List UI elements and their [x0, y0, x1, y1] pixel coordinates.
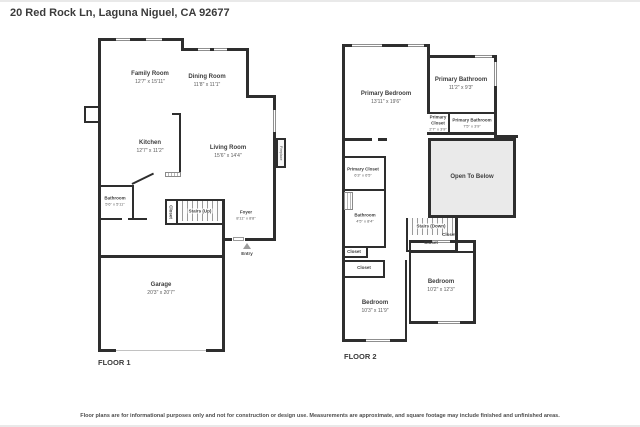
wall-segment	[411, 251, 473, 253]
shower	[344, 192, 353, 210]
room-label-closet-bedroom: Closet	[442, 232, 456, 238]
wall-segment	[179, 113, 181, 173]
wall-segment	[342, 138, 372, 141]
disclaimer-text: Floor plans are for informational purpos…	[0, 413, 640, 419]
floor1-plan: Fireplace Stairs (Up) Closet Family Room…	[82, 36, 297, 366]
wall-segment	[345, 276, 385, 278]
wall-niche	[84, 106, 100, 123]
window	[438, 321, 460, 324]
floor1-label: FLOOR 1	[98, 358, 131, 367]
room-label-closet-under-stairs: Closet	[424, 240, 438, 246]
page-top-border	[0, 0, 640, 2]
window	[116, 38, 130, 41]
wall-segment	[427, 44, 430, 114]
wall-segment	[405, 260, 407, 342]
wall-segment	[342, 246, 386, 248]
room-label-primary-bedroom: Primary Bedroom 13'11" x 19'6"	[361, 91, 411, 105]
wall-segment	[98, 185, 134, 187]
wall-segment	[128, 218, 147, 220]
wall-segment	[98, 255, 225, 258]
room-label-closet-hall-a: Closet	[347, 249, 361, 255]
window	[198, 48, 210, 51]
wall-segment	[427, 132, 497, 135]
room-label-bathroom-f2: Bathroom 4'5" x 8'4"	[354, 212, 375, 223]
wall-segment	[165, 199, 167, 225]
room-label-garage: Garage 20'3" x 20'7"	[147, 282, 174, 296]
wall-segment	[384, 156, 386, 248]
kitchen-counter	[165, 172, 181, 177]
window	[494, 62, 497, 86]
wall-segment	[342, 189, 386, 191]
window	[352, 44, 382, 47]
room-label-bedroom-right: Bedroom 10'2" x 12'3"	[427, 279, 454, 293]
wall-segment	[342, 258, 345, 342]
room-label-living-room: Living Room 15'6" x 14'4"	[210, 145, 246, 159]
wall-segment	[246, 48, 249, 98]
window	[408, 44, 424, 47]
wall-segment	[206, 349, 225, 352]
room-label-closet-hall-b: Closet	[357, 265, 371, 271]
stairs-up-label: Stairs (Up)	[188, 209, 213, 214]
room-label-entry: Entry	[241, 251, 253, 257]
wall-segment	[98, 38, 101, 352]
wall-segment	[345, 260, 385, 262]
fireplace-label: Fireplace	[279, 146, 283, 160]
wall-segment	[98, 38, 184, 41]
wall-segment	[378, 138, 387, 141]
stairs-down-label: Stairs (Down)	[415, 224, 446, 229]
window	[146, 38, 162, 41]
room-label-primary-closet-small: Primary Closet 2'7" x 3'9"	[427, 115, 449, 132]
wall-segment	[342, 256, 368, 258]
room-label-bathroom: Bathroom 5'6" x 5'11"	[104, 195, 125, 206]
room-label-primary-bathroom-small: Primary Bathroom 7'5" x 3'9"	[452, 117, 491, 128]
room-label-foyer: Foyer 8'11" x 8'8"	[236, 209, 255, 220]
wall-segment	[245, 238, 276, 241]
room-label-open-to-below: Open To Below	[450, 174, 493, 182]
room-label-dining-room: Dining Room 11'8" x 11'1"	[188, 74, 225, 88]
window	[366, 339, 390, 342]
wall-segment	[222, 199, 225, 352]
wall-segment	[165, 223, 222, 225]
wall-segment	[132, 185, 134, 220]
fireplace: Fireplace	[276, 138, 286, 168]
room-label-family-room: Family Room 12'7" x 15'11"	[131, 71, 169, 85]
closet-label: Closet	[169, 205, 174, 219]
wall-segment	[98, 218, 122, 220]
entry-arrow-icon	[243, 243, 251, 249]
room-label-primary-closet: Primary Closet 6'3" x 6'5"	[347, 166, 379, 177]
room-label-kitchen: Kitchen 12'7" x 11'2"	[136, 140, 163, 154]
entry-door	[233, 237, 244, 241]
wall-segment	[473, 240, 476, 324]
window	[214, 48, 227, 51]
wall-segment	[342, 44, 345, 258]
wall-segment	[98, 349, 116, 352]
wall-segment	[246, 95, 276, 98]
window	[475, 55, 492, 58]
wall-segment	[342, 156, 386, 158]
garage-door-line	[116, 350, 206, 351]
page-title: 20 Red Rock Ln, Laguna Niguel, CA 92677	[10, 7, 230, 19]
window	[273, 110, 276, 132]
floor2-plan: Open To Below Stairs (Down) Primary Bedr…	[338, 42, 528, 364]
room-label-bedroom-left: Bedroom 10'3" x 11'9"	[361, 300, 388, 314]
floor2-label: FLOOR 2	[344, 352, 377, 361]
wall-segment	[132, 173, 154, 185]
room-label-primary-bathroom: Primary Bathroom 11'2" x 9'3"	[435, 77, 487, 91]
wall-segment	[172, 113, 181, 115]
